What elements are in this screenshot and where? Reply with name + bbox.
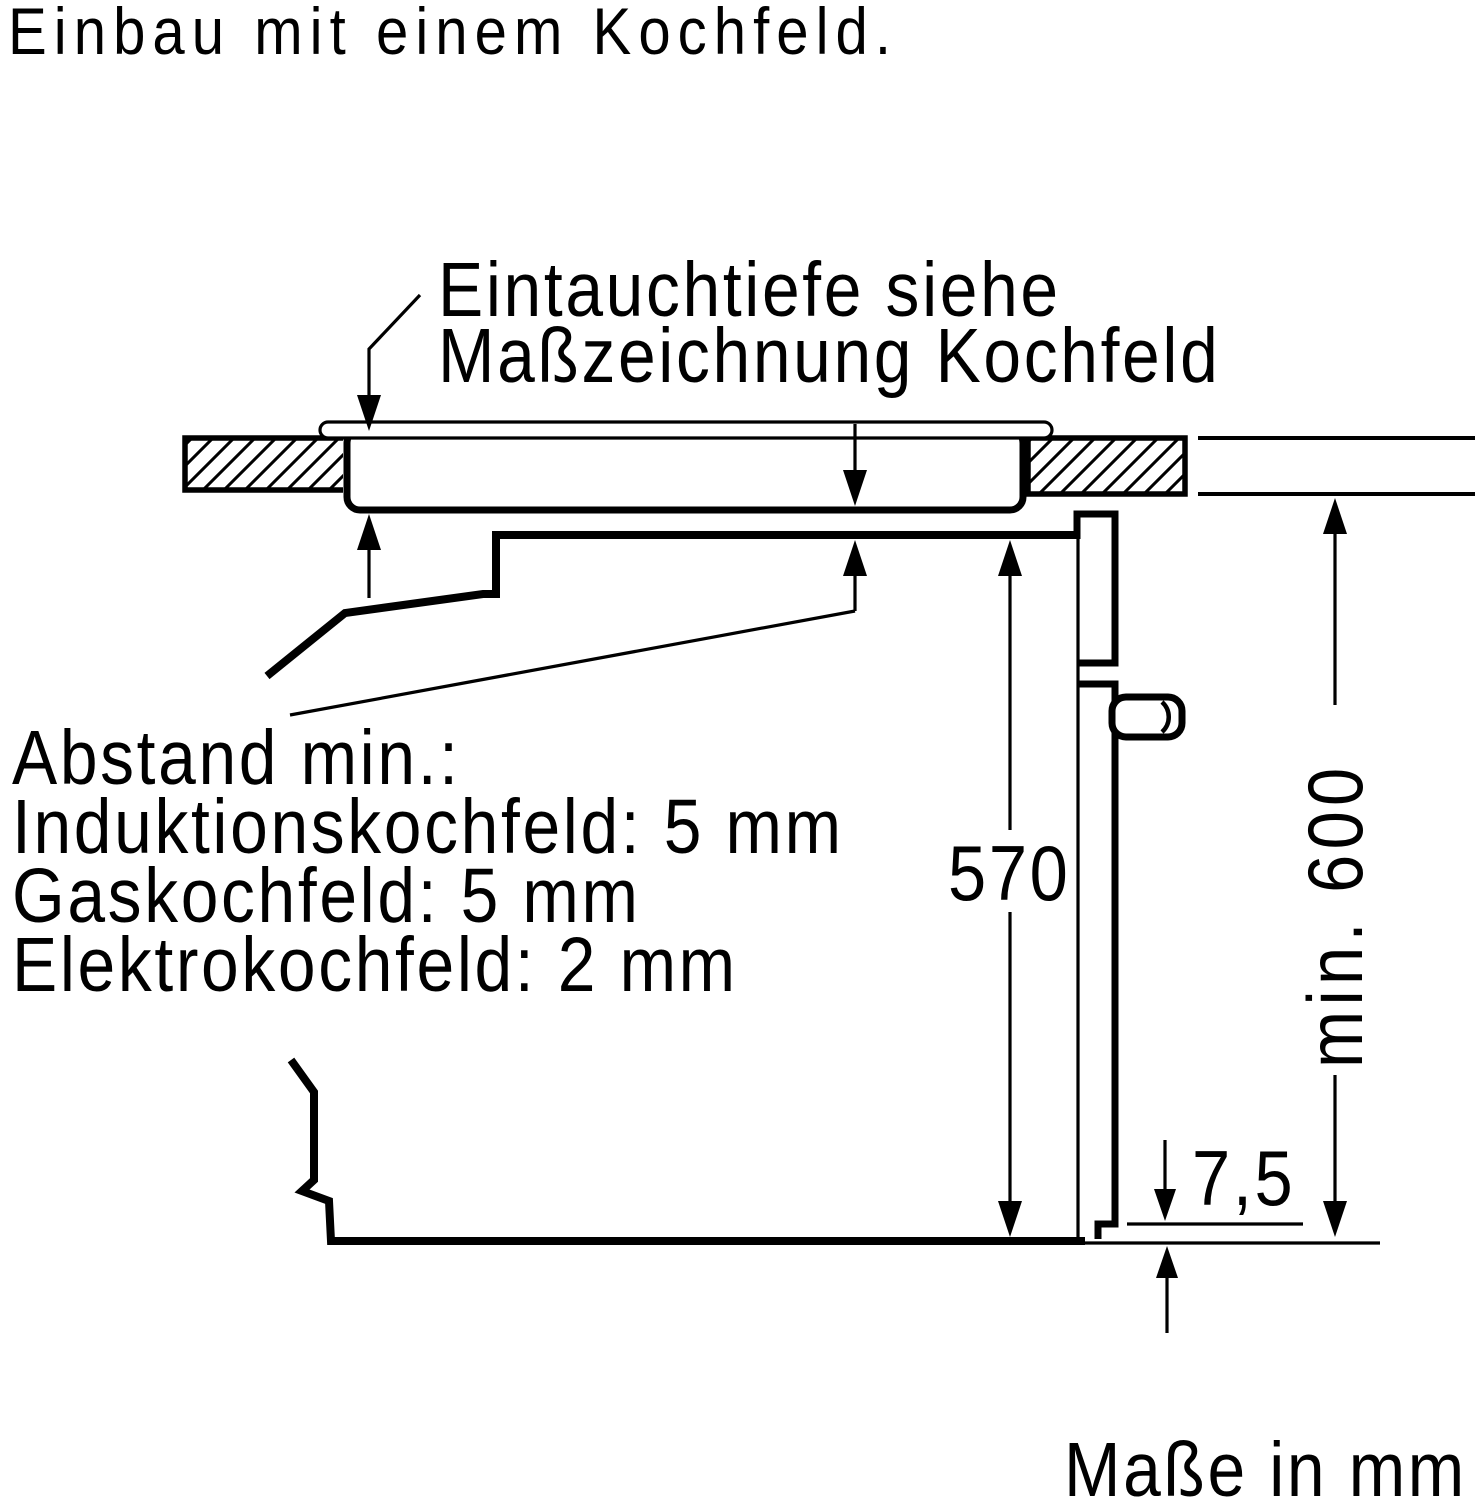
cooktop-body xyxy=(347,430,1023,510)
clearance-arrow-icon xyxy=(843,540,867,576)
countertop-section-lines xyxy=(1198,438,1475,494)
clearance-item-gas: Gaskochfeld: 5 mm xyxy=(12,862,641,931)
control-panel xyxy=(1077,514,1115,663)
callout-leader-line xyxy=(369,295,420,399)
oven-bottom-and-break xyxy=(291,1060,1085,1241)
dim-75-up-arrow-icon xyxy=(1156,1246,1178,1278)
oven-top-panel xyxy=(267,535,1077,676)
left-up-arrow-icon xyxy=(357,514,381,550)
countertop-right-hatch xyxy=(1028,438,1185,494)
cooktop-glass xyxy=(320,422,1052,438)
dim-600-top-arrow-icon xyxy=(1323,498,1347,534)
page-title: Einbau mit einem Kochfeld. xyxy=(8,0,898,68)
dim-label-min-600: min. 600 xyxy=(1290,762,1381,1068)
clearance-item-electric: Elektrokochfeld: 2 mm xyxy=(12,931,738,1000)
dim-570-top-arrow-icon xyxy=(998,540,1022,576)
control-knob xyxy=(1112,697,1182,737)
clearance-heading: Abstand min.: xyxy=(12,724,461,793)
oven-door xyxy=(1079,684,1115,1239)
installation-diagram: Einbau mit einem Kochfeld. Eintauchtiefe… xyxy=(0,0,1483,1500)
dim-label-570: 570 xyxy=(948,828,1070,919)
dim-570-bottom-arrow-icon xyxy=(998,1201,1022,1237)
clearance-leader-line xyxy=(290,611,855,715)
dim-600-bottom-arrow-icon xyxy=(1323,1201,1347,1237)
countertop-left-hatch xyxy=(185,438,343,490)
dim-label-7-5: 7,5 xyxy=(1192,1133,1295,1224)
clearance-item-induction: Induktionskochfeld: 5 mm xyxy=(12,793,844,862)
units-note: Maße in mm xyxy=(1064,1426,1467,1500)
dim-75-down-arrow-icon xyxy=(1154,1189,1176,1221)
callout-line-2: Maßzeichnung Kochfeld xyxy=(438,323,1220,389)
